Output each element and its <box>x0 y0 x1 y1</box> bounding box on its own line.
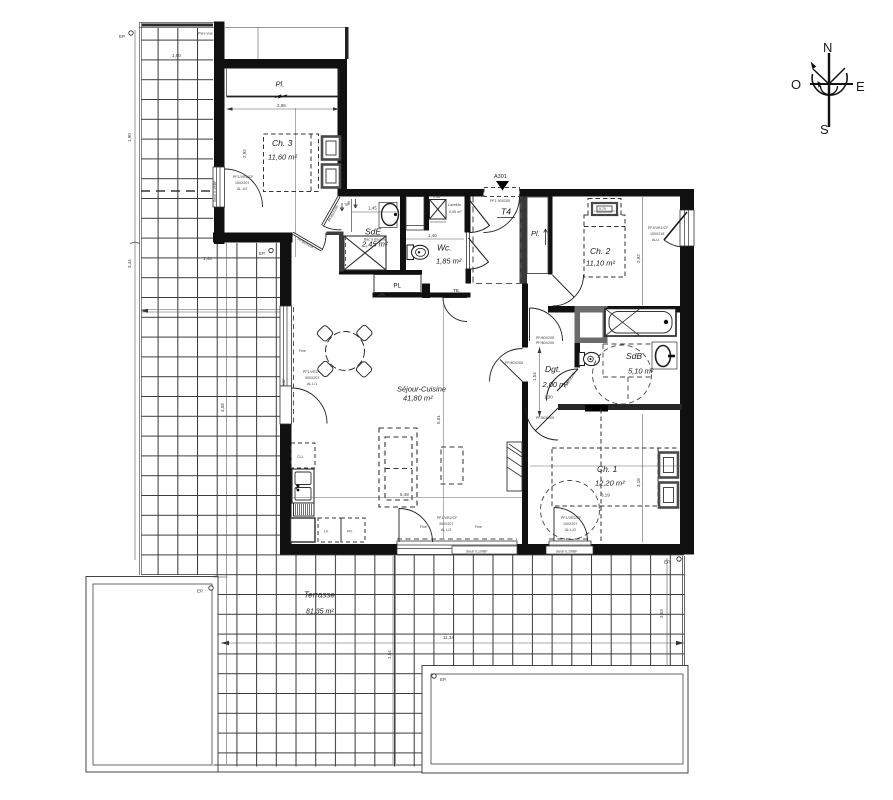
svg-text:12,20 m²: 12,20 m² <box>595 479 625 488</box>
svg-text:Seuil 0,19/BF: Seuil 0,19/BF <box>556 550 578 554</box>
svg-text:2,92: 2,92 <box>636 254 641 263</box>
svg-text:PF/80X205: PF/80X205 <box>505 361 523 365</box>
svg-text:Seuil 0,19/BF: Seuil 0,19/BF <box>466 550 488 554</box>
svg-text:PF1/VR2/CF: PF1/VR2/CF <box>437 516 458 520</box>
svg-text:5,48: 5,48 <box>400 492 409 497</box>
svg-text:Ch. 1: Ch. 1 <box>597 464 618 474</box>
svg-text:SdE: SdE <box>365 227 381 237</box>
svg-text:PF1/VR2/CF: PF1/VR2/CF <box>233 175 254 179</box>
svg-text:0,70: 0,70 <box>599 207 606 211</box>
svg-text:A301: A301 <box>494 174 507 180</box>
svg-text:3,19: 3,19 <box>601 493 610 498</box>
svg-text:O: O <box>791 77 801 92</box>
svg-text:LaveMa: LaveMa <box>448 203 461 207</box>
svg-text:E: E <box>856 79 865 94</box>
svg-text:0,95 m²: 0,95 m² <box>449 210 462 214</box>
svg-text:N: N <box>823 40 832 55</box>
svg-text:AL 1/2: AL 1/2 <box>237 187 247 191</box>
svg-text:100X207: 100X207 <box>235 181 249 185</box>
svg-text:3,53: 3,53 <box>659 609 664 618</box>
svg-text:PF1/VR2/CF: PF1/VR2/CF <box>561 516 582 520</box>
svg-text:PF/80X205: PF/80X205 <box>536 336 554 340</box>
svg-text:LV.: LV. <box>324 530 329 534</box>
svg-text:EP.: EP. <box>119 34 126 39</box>
svg-text:1,44: 1,44 <box>203 256 212 261</box>
svg-text:81,35 m²: 81,35 m² <box>306 609 334 616</box>
svg-text:AL L/3: AL L/3 <box>441 528 451 532</box>
svg-text:4,58: 4,58 <box>220 403 225 412</box>
svg-text:EP.: EP. <box>259 251 266 256</box>
svg-text:EP.: EP. <box>440 677 447 682</box>
svg-text:5,01: 5,01 <box>436 415 441 424</box>
svg-text:11,34: 11,34 <box>443 635 454 640</box>
svg-text:Fixe: Fixe <box>299 349 306 353</box>
svg-text:T4: T4 <box>501 207 511 217</box>
svg-text:41,80 m²: 41,80 m² <box>403 394 433 403</box>
svg-text:SdB: SdB <box>626 351 642 361</box>
svg-text:100X207: 100X207 <box>563 522 577 526</box>
svg-text:1,90: 1,90 <box>127 133 132 142</box>
svg-text:PF1 90X205: PF1 90X205 <box>490 199 510 203</box>
svg-text:300X207: 300X207 <box>439 522 453 526</box>
svg-text:1,54: 1,54 <box>387 650 392 659</box>
svg-text:3,18: 3,18 <box>636 478 641 487</box>
svg-text:FR.: FR. <box>347 530 353 534</box>
svg-text:1,85 m²: 1,85 m² <box>436 257 462 266</box>
svg-text:PL: PL <box>394 284 402 290</box>
svg-text:Pl.: Pl. <box>276 80 285 89</box>
svg-text:Wc.: Wc. <box>437 243 452 253</box>
svg-text:PF4/VR1/CF: PF4/VR1/CF <box>648 226 669 230</box>
svg-text:Pare-vue: Pare-vue <box>198 32 213 36</box>
svg-text:Terrasse: Terrasse <box>304 591 335 600</box>
svg-text:EP.: EP. <box>664 560 671 565</box>
svg-text:ALU: ALU <box>652 238 659 242</box>
svg-text:100X218: 100X218 <box>650 232 664 236</box>
svg-text:PF/80X205: PF/80X205 <box>536 416 554 420</box>
svg-text:1,30: 1,30 <box>544 395 553 400</box>
svg-text:5,10 m²: 5,10 m² <box>628 367 654 376</box>
svg-text:TE.: TE. <box>453 288 460 294</box>
svg-text:Dgt.: Dgt. <box>545 364 561 374</box>
svg-text:11,60 m²: 11,60 m² <box>268 153 298 162</box>
svg-text:Séjour-Cuisine: Séjour-Cuisine <box>397 385 446 394</box>
svg-text:AL L/1: AL L/1 <box>307 382 317 386</box>
svg-text:1,90: 1,90 <box>172 53 181 58</box>
svg-text:2,86: 2,86 <box>277 103 286 108</box>
svg-text:PF/80X205: PF/80X205 <box>536 341 554 345</box>
svg-text:300X207: 300X207 <box>305 376 319 380</box>
svg-text:1,54: 1,54 <box>532 372 537 381</box>
svg-text:Fixe: Fixe <box>420 525 427 529</box>
svg-text:3,44: 3,44 <box>127 259 132 268</box>
svg-text:1,45: 1,45 <box>368 206 377 211</box>
svg-text:1,44: 1,44 <box>433 195 440 199</box>
svg-text:Fixe: Fixe <box>475 525 482 529</box>
svg-text:CLL: CLL <box>297 455 304 459</box>
svg-text:Seuil 0,19/BF: Seuil 0,19/BF <box>213 180 217 202</box>
svg-text:2,45 m²: 2,45 m² <box>361 240 388 249</box>
svg-text:90: 90 <box>347 201 351 205</box>
svg-text:2,92: 2,92 <box>242 149 247 158</box>
svg-text:Ch. 2: Ch. 2 <box>590 246 611 256</box>
svg-text:2,00 m²: 2,00 m² <box>542 380 569 389</box>
svg-text:AL L/O: AL L/O <box>565 528 576 532</box>
svg-text:1,40: 1,40 <box>428 233 437 238</box>
svg-text:EP.: EP. <box>197 589 204 594</box>
svg-text:11,10 m²: 11,10 m² <box>586 259 616 268</box>
svg-text:Ch. 3: Ch. 3 <box>272 138 293 148</box>
svg-text:Pl.: Pl. <box>531 229 540 238</box>
svg-text:S: S <box>820 122 829 137</box>
